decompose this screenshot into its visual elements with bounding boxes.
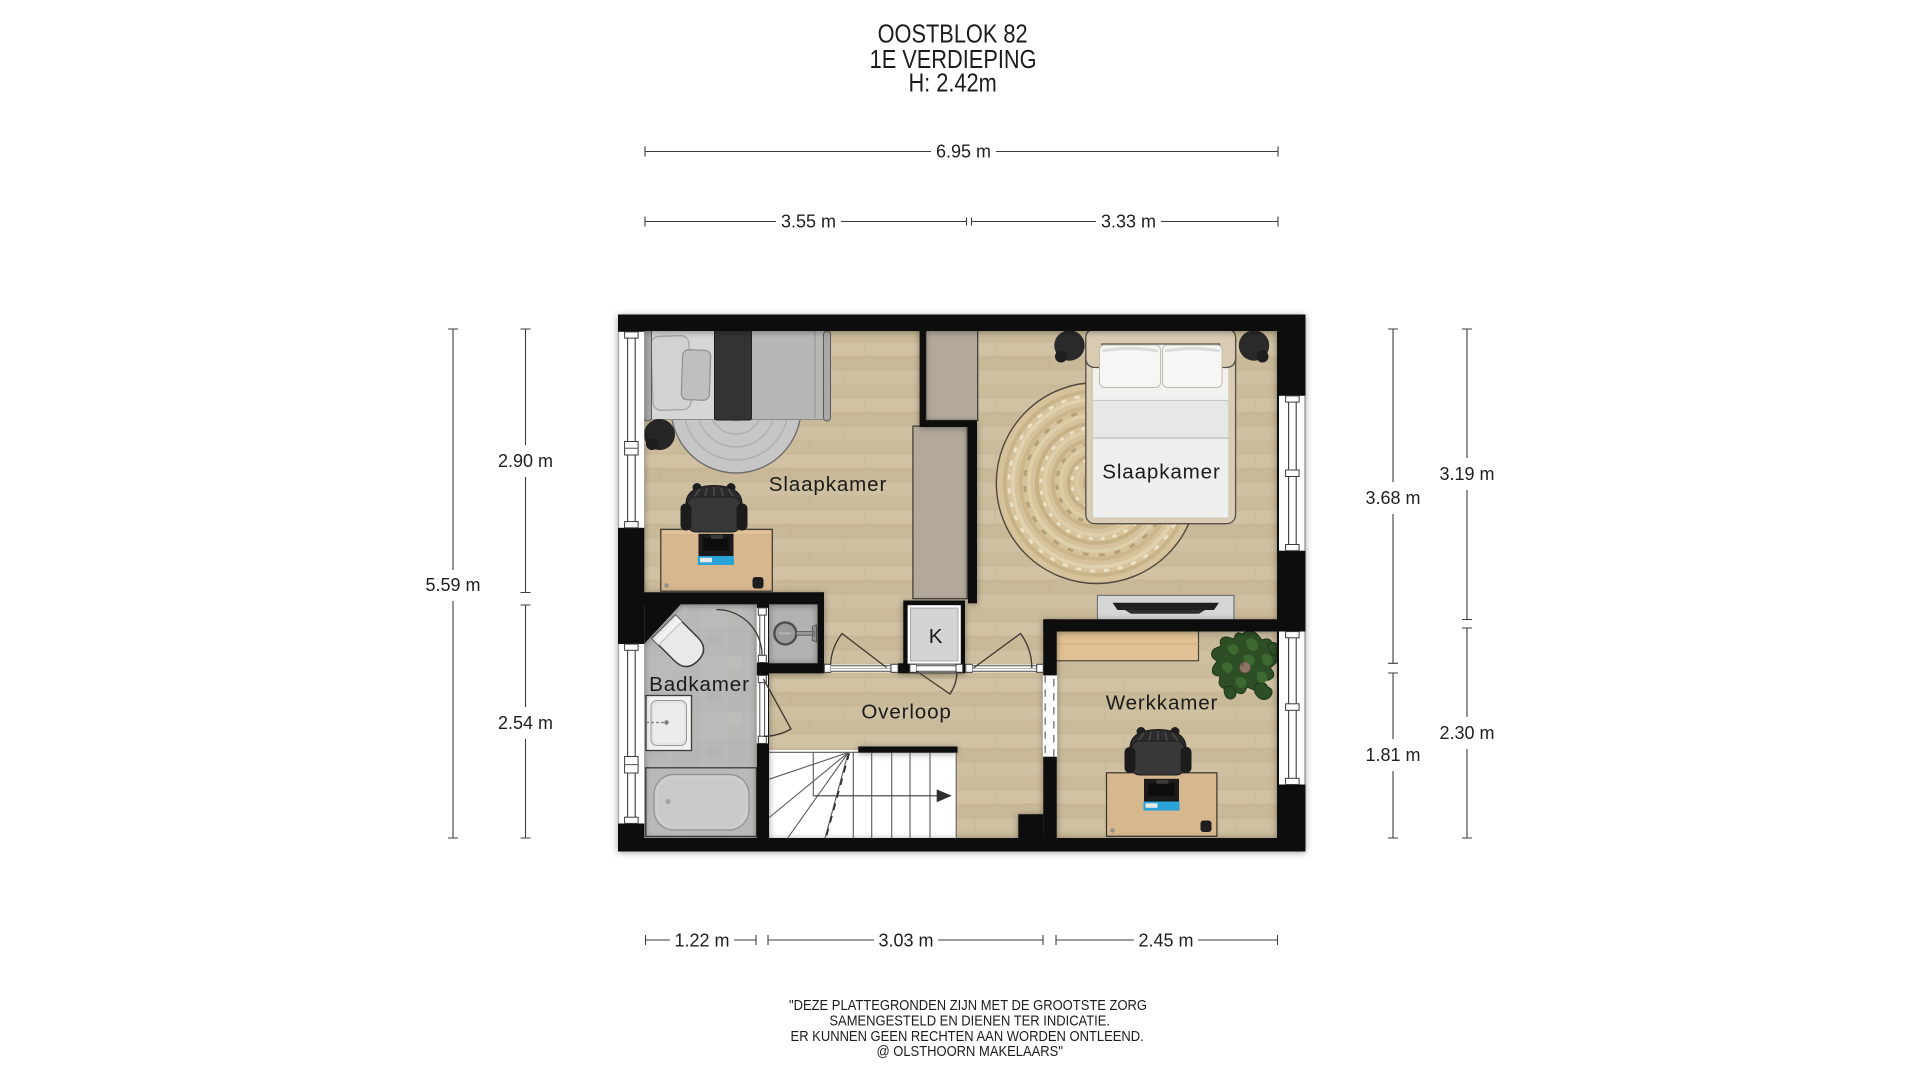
- svg-text:2.54 m: 2.54 m: [498, 713, 553, 733]
- svg-text:6.95 m: 6.95 m: [936, 142, 991, 162]
- svg-text:Slaapkamer: Slaapkamer: [1102, 460, 1220, 483]
- svg-text:2.30 m: 2.30 m: [1439, 723, 1494, 743]
- svg-text:1.81 m: 1.81 m: [1365, 745, 1420, 765]
- svg-text:Werkkamer: Werkkamer: [1106, 692, 1219, 715]
- svg-text:Badkamer: Badkamer: [649, 673, 750, 696]
- svg-text:2.90 m: 2.90 m: [498, 451, 553, 471]
- svg-text:Slaapkamer: Slaapkamer: [769, 473, 887, 496]
- svg-text:5.59 m: 5.59 m: [425, 575, 480, 595]
- svg-text:3.03 m: 3.03 m: [878, 931, 933, 951]
- svg-text:1.22 m: 1.22 m: [674, 931, 729, 951]
- svg-text:@ OLSTHOORN MAKELAARS": @ OLSTHOORN MAKELAARS": [876, 1042, 1062, 1059]
- svg-text:OOSTBLOK 82: OOSTBLOK 82: [878, 21, 1028, 49]
- svg-text:3.33 m: 3.33 m: [1101, 212, 1156, 232]
- svg-text:2.45 m: 2.45 m: [1138, 931, 1193, 951]
- svg-text:K: K: [929, 625, 944, 648]
- svg-text:3.68 m: 3.68 m: [1365, 488, 1420, 508]
- svg-text:H: 2.42m: H: 2.42m: [908, 70, 996, 98]
- svg-text:3.19 m: 3.19 m: [1439, 464, 1494, 484]
- svg-text:3.55 m: 3.55 m: [781, 212, 836, 232]
- svg-text:Overloop: Overloop: [861, 700, 951, 723]
